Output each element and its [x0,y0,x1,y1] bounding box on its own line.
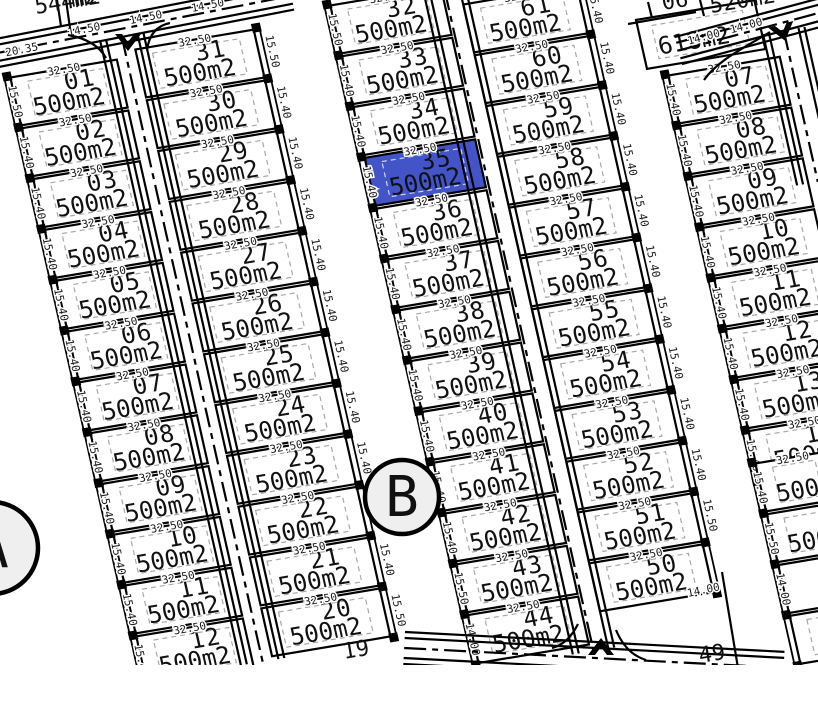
map-canvas: 01500m232.5002500m232.5003500m232.500450… [0,0,818,703]
plot-49: 49 [697,640,727,669]
block-marker-a[interactable]: A [0,502,38,594]
block-marker-b-label: B [385,465,419,530]
block-marker-b[interactable]: B [365,460,439,534]
subdivision-map: 01500m232.5002500m232.5003500m232.500450… [0,0,818,703]
boundary-tick [388,632,399,642]
block-marker-a-label: A [0,516,9,581]
boundary-line-fragment [648,2,652,18]
road-dim: 14.50 [190,0,225,15]
top-partial-m2: m2 [69,0,99,13]
boundary-tick [322,0,333,10]
strip-6: 50032.505005515.4015.5014.00 [747,445,818,671]
boundary-tick [660,69,671,79]
page-margin [0,665,818,703]
boundary-tick [2,71,13,81]
road-edge-line [799,28,818,179]
plot-19: 19 [341,636,371,665]
